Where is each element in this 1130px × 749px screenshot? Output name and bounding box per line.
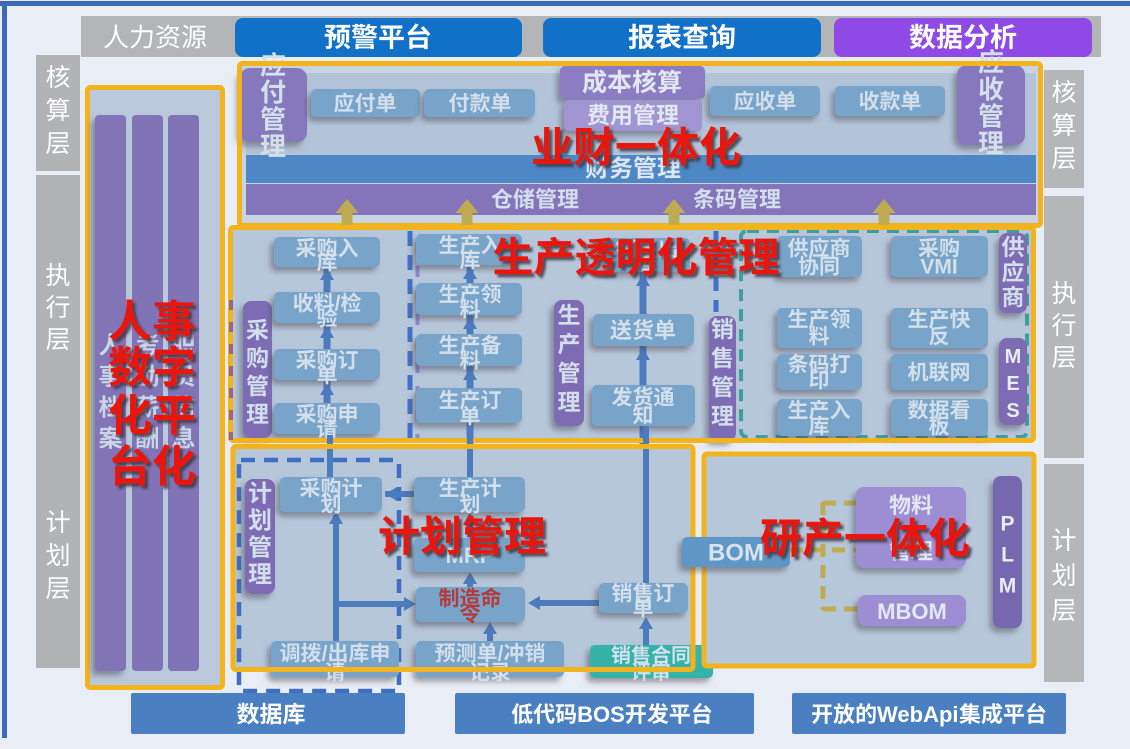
svg-text:/: / [498, 643, 504, 666]
svg-text:M: M [999, 575, 1017, 598]
svg-text:VMI: VMI [920, 256, 957, 279]
svg-text:L: L [1001, 544, 1014, 567]
svg-text:BOM: BOM [708, 540, 764, 567]
svg-text:WebApi: WebApi [877, 702, 958, 727]
svg-text:S: S [1006, 400, 1019, 422]
svg-text:E: E [1006, 373, 1019, 395]
svg-text:MBOM: MBOM [877, 599, 947, 624]
svg-text:P: P [1000, 513, 1014, 536]
svg-text:/: / [322, 643, 328, 666]
svg-text:BOS: BOS [577, 702, 625, 727]
svg-text:/: / [335, 293, 341, 316]
svg-text:M: M [1005, 346, 1022, 368]
